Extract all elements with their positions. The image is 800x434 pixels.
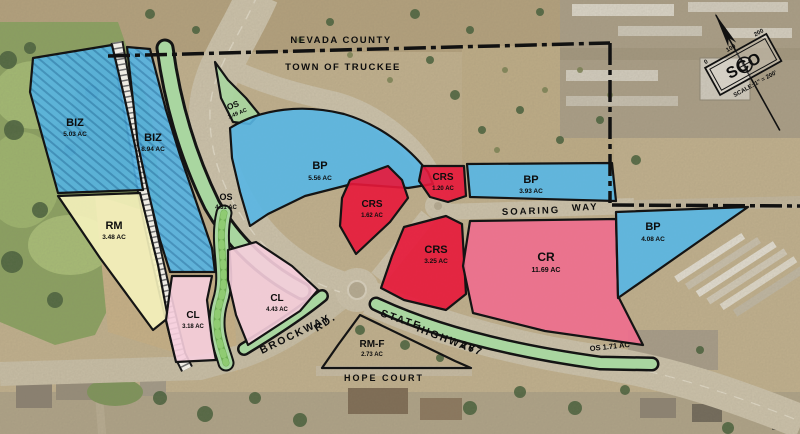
parcel-label: BIZ [144,132,162,144]
soaring-way-label-2: WAY [572,202,599,214]
parcel-acres: 5.03 AC [63,131,87,138]
parcel-label: CL [270,293,283,304]
parcel-acres: 8.94 AC [141,146,165,153]
soaring-way-label-1: SOARING [502,205,561,218]
parcel-acres: 4.43 AC [266,307,288,313]
parcel-acres: 1.62 AC [361,213,383,219]
parcel-label: RM [105,220,122,232]
parcel-label: BP [645,221,660,233]
parcel-label: CR [537,250,555,264]
parcel-acres: 3.93 AC [519,188,543,195]
parcel-acres: 4.31 AC [215,205,237,211]
parcel-label: CRS [424,244,447,256]
nevada-county-label: NEVADA COUNTY [290,35,391,46]
hope-court-label: HOPE COURT [344,373,424,383]
parcel-acres: 3.48 AC [102,234,126,241]
parcel-label: BP [312,160,327,172]
parcel-acres: 11.69 AC [532,267,561,274]
parcel-acres: 3.25 AC [424,258,448,265]
parcel-label: CL [186,310,199,321]
parcel-label: CRS [361,199,382,210]
zoning-map-svg: BIZ 5.03 AC BIZ 8.94 AC RM 3.48 AC OS 1.… [0,0,800,434]
parcel-label: RM-F [360,339,385,350]
parcel-acres: 3.18 AC [182,324,204,330]
parcel-acres: 1.20 AC [432,186,454,192]
parcel-label: BP [523,174,538,186]
zoning-map: BIZ 5.03 AC BIZ 8.94 AC RM 3.48 AC OS 1.… [0,0,800,434]
parcel-label: OS [219,192,232,202]
parcel-bp-3-93 [467,163,616,201]
parcel-acres: 4.08 AC [641,236,665,243]
parcel-acres: 5.56 AC [308,175,332,182]
town-of-truckee-label: TOWN OF TRUCKEE [285,62,401,73]
parcel-acres: 2.73 AC [361,352,383,358]
parcel-label: BIZ [66,117,84,129]
parcel-label: CRS [432,172,453,183]
